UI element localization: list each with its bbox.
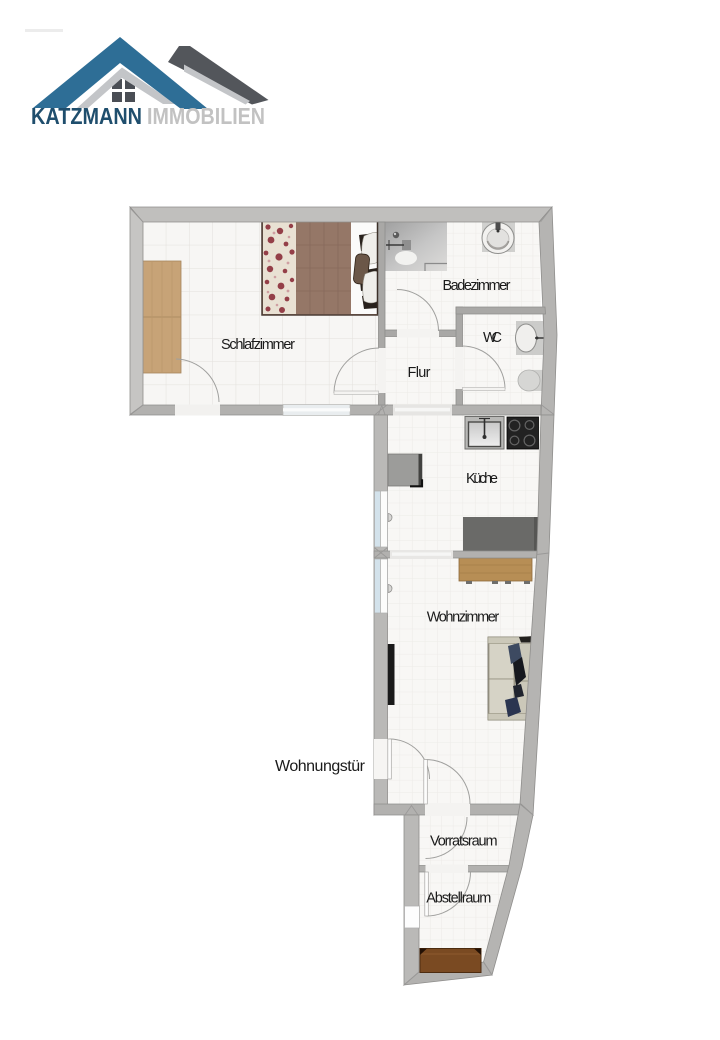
- svg-text:Wohnungstür: Wohnungstür: [275, 758, 366, 775]
- svg-text:WC: WC: [483, 330, 502, 346]
- svg-text:IMMOBILIEN: IMMOBILIEN: [147, 103, 265, 129]
- svg-text:KATZMANN: KATZMANN: [31, 103, 142, 129]
- svg-text:Vorratsraum: Vorratsraum: [430, 834, 498, 850]
- svg-text:Badezimmer: Badezimmer: [443, 278, 511, 294]
- svg-text:Wohnzimmer: Wohnzimmer: [427, 610, 500, 626]
- svg-text:Schlafzimmer: Schlafzimmer: [221, 337, 295, 353]
- svg-text:Flur: Flur: [408, 365, 431, 381]
- svg-text:Abstellraum: Abstellraum: [426, 891, 491, 907]
- svg-text:Küche: Küche: [466, 471, 498, 487]
